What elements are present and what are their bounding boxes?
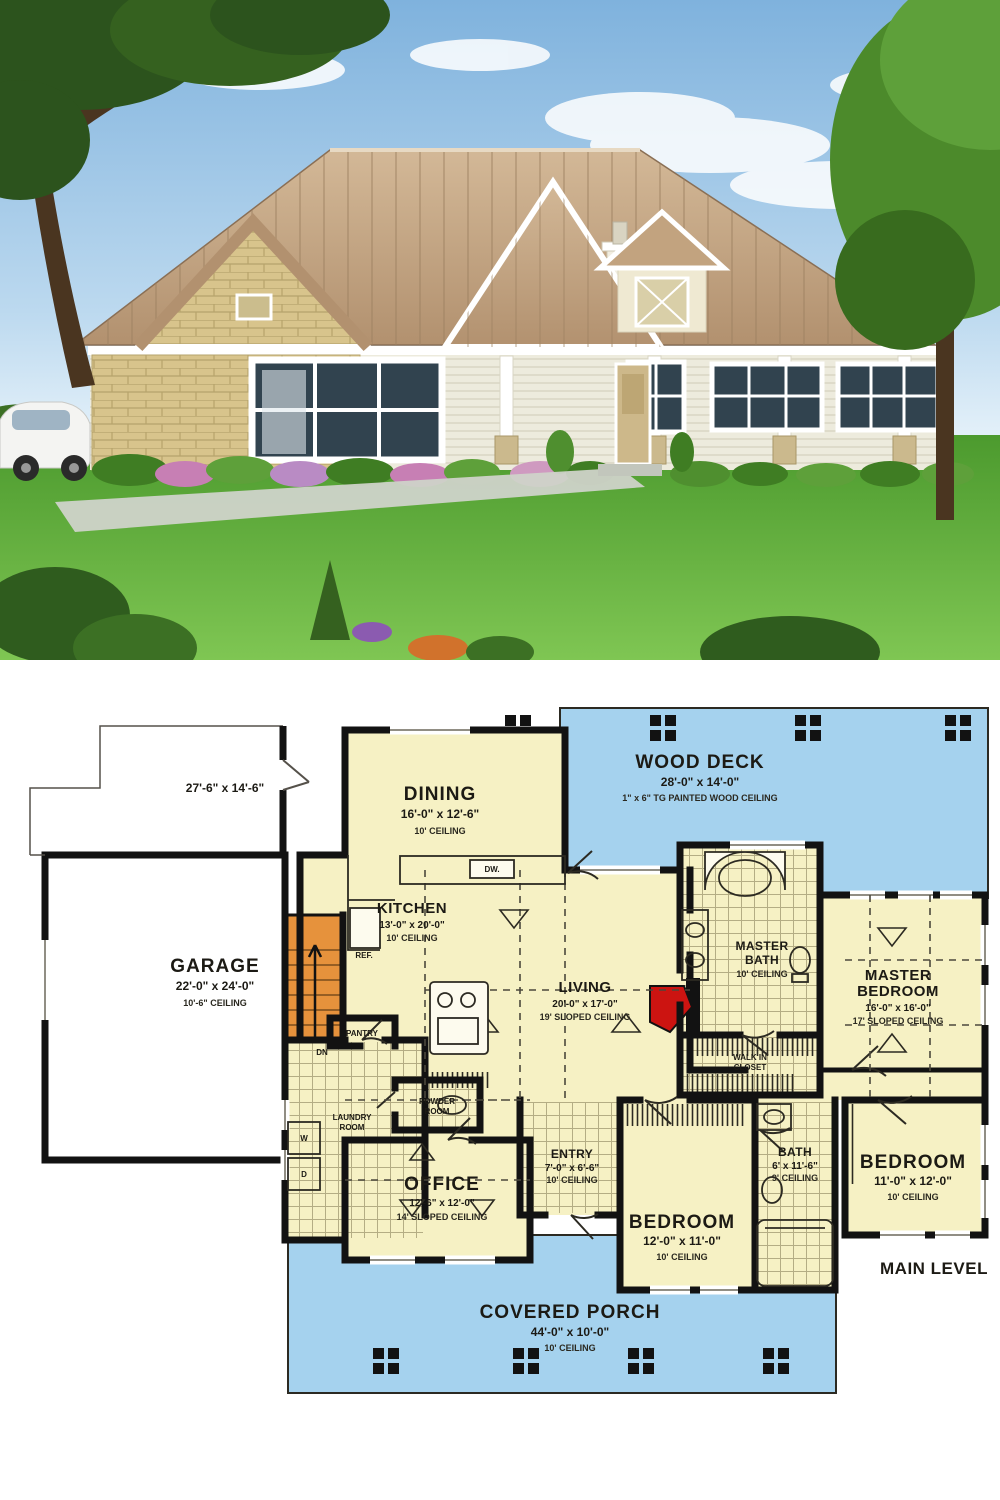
deck-dims: 28'-0" x 14'-0" [661,775,739,789]
front-door [616,364,650,464]
master-bedroom-name: MASTER [865,967,931,984]
main-level-label: MAIN LEVEL [880,1259,988,1278]
master-bath-name: MASTER [735,939,788,953]
entry-ceiling: 10' CEILING [546,1175,597,1185]
garage-ceiling: 10'-6" CEILING [183,998,246,1008]
garage-dims: 22'-0" x 24'-0" [176,979,254,993]
right-window [838,364,938,430]
porch-steps [598,464,662,476]
refrigerator [350,908,380,948]
porch-dims: 44'-0" x 10'-0" [531,1325,609,1339]
dn-label: DN [316,1048,328,1057]
master-bath-name2: BATH [745,953,779,967]
walk-in-closet-name: WALK IN [733,1053,767,1062]
living-ceiling: 19' SLOPED CEILING [540,1012,631,1022]
potted-tree [546,430,574,474]
entry-name: ENTRY [551,1147,593,1161]
master-bedroom-name2: BEDROOM [857,983,939,1000]
floor-plan: 27'-6" x 14'-6" GARAGE 22'-0" x 24'-0" 1… [0,660,1000,1500]
master-bath-ceiling: 10' CEILING [736,969,787,979]
kitchen-name: KITCHEN [377,900,447,917]
kitchen-ceiling: 10' CEILING [386,933,437,943]
kitchen-island [430,982,488,1054]
garage-pad-dims: 27'-6" x 14'-6" [186,781,264,795]
ref-label: REF. [355,951,372,960]
dryer-label: D [301,1170,307,1179]
bath-ceiling: 9' CEILING [772,1173,818,1183]
washer-label: W [300,1134,308,1143]
living-dims: 20'-0" x 17'-0" [552,999,618,1010]
porch-ceiling: 10' CEILING [544,1343,595,1353]
bath-dims: 6' x 11'-6" [772,1161,818,1172]
floor-plan-svg: 27'-6" x 14'-6" GARAGE 22'-0" x 24'-0" 1… [0,660,1000,1500]
bedroom-front-dims: 12'-0" x 11'-0" [643,1234,721,1248]
pantry-name: PANTRY [346,1029,379,1038]
house-photo [0,0,1000,660]
bedroom-closet [625,1104,745,1126]
office-ceiling: 14' SLOPED CEILING [397,1212,488,1222]
car-window [12,410,70,430]
dining-ceiling: 10' CEILING [414,826,465,836]
bedroom-right-ceiling: 10' CEILING [887,1192,938,1202]
office-dims: 12'-6" x 12'-0" [409,1198,475,1209]
entry-dims: 7'-0" x 6'-6" [545,1163,600,1174]
walk-in-closet-name2: CLOSET [734,1063,767,1072]
bedroom-right-name: BEDROOM [860,1152,966,1173]
purple-flowers [352,622,392,642]
garage-name: GARAGE [170,956,259,977]
powder-name2: ROOM [425,1107,450,1116]
bedroom-right-dims: 11'-0" x 12'-0" [874,1174,952,1188]
garage-pad [30,726,309,855]
living-name: LIVING [558,979,611,996]
deck-name: WOOD DECK [635,752,764,773]
deck-note: 1" x 6" TG PAINTED WOOD CEILING [622,793,777,803]
dining-name: DINING [404,784,477,805]
bedroom-front-ceiling: 10' CEILING [656,1252,707,1262]
porch-name: COVERED PORCH [480,1302,661,1323]
house-photo-svg [0,0,1000,660]
kitchen-dims: 13'-0" x 20'-0" [379,920,445,931]
potted-tree [670,432,694,472]
master-bedroom-ceiling: 17' SLOPED CEILING [853,1016,944,1026]
bedroom-front-name: BEDROOM [629,1212,735,1233]
bath-name: BATH [778,1145,812,1159]
stone-wing-window [252,360,442,460]
powder-name: POWDER [419,1097,455,1106]
porch-window [712,364,822,430]
laundry-name: LAUNDRY [333,1113,372,1122]
office-name: OFFICE [404,1174,480,1195]
gable-louver [237,295,271,319]
master-bedroom-dims: 16'-0" x 16'-0" [865,1003,931,1014]
dining-dims: 16'-0" x 12'-6" [401,807,479,821]
orange-flowers [408,635,468,660]
laundry-name2: ROOM [340,1123,365,1132]
dw-label: DW. [484,865,499,874]
